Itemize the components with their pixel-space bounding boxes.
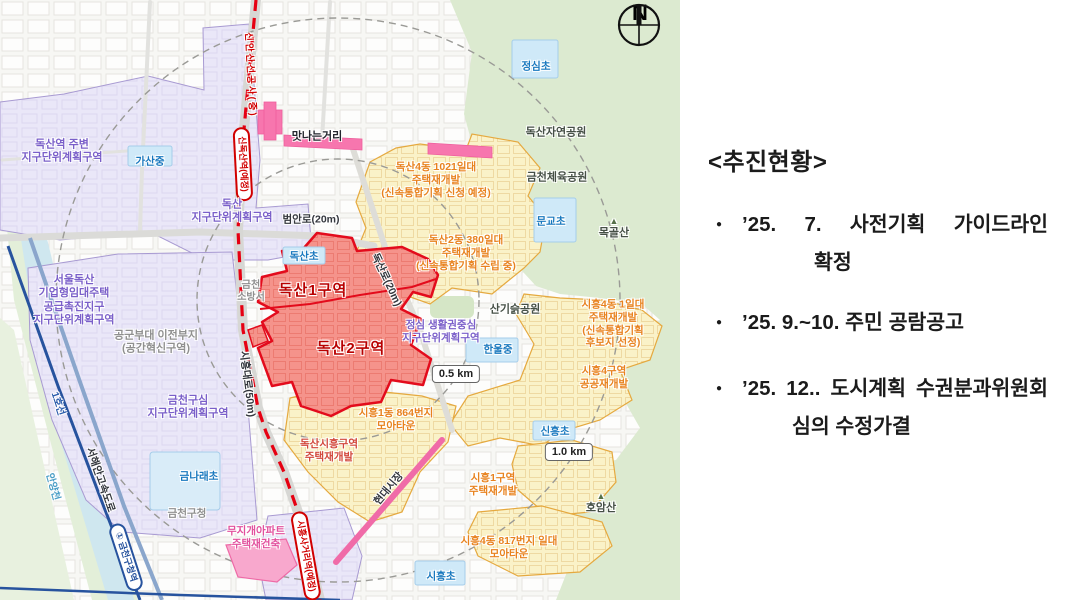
zone-label-jeongsim-udp: 정심 생활권중심 지구단위계획구역 [402,319,479,345]
place-label-hoam-mountain: ▲ 호암산 [586,492,616,514]
place-label-geumnarae-elementary: 금나래초 [180,471,219,484]
place-label-gasan-middle-school: 가산중 [136,156,165,169]
road-label-beoman-ro: 범안로(20m) [283,214,340,227]
zone-label-siheung1dong-864: 시흥1동 864번지 모아타운 [359,407,434,433]
place-label-mokgol-mountain: ▲ 목골산 [599,217,629,239]
status-item-1-line2: 확정 [814,250,1046,276]
compass-rose: N [616,2,664,24]
zone-label-doksan2: 독산2구역 [317,340,386,358]
zone-label-doksan-siheung: 독산시흥구역 주택재개발 [300,438,358,464]
place-label-geumcheon-sports-park: 금천체육공원 [527,171,588,184]
place-label-doksan-nature-park: 독산자연공원 [526,126,587,139]
place-label-jeongsim-elementary: 정심초 [522,61,551,74]
zone-label-doksan4dong: 독산4동 1021일대 주택재개발 (신속통합기획 신청 예정) [381,161,490,199]
zone-label-siheung4-guyeok: 시흥4구역 공공재개발 [580,365,628,391]
zone-label-doksan2dong: 독산2동 380일대 주택재개발 (신속통합기획 수립 중) [416,234,516,272]
place-label-sangi-park: 산기슭공원 [490,303,541,316]
place-label-geumcheon-fire-station: 금천 소방서 [237,280,265,304]
status-item-3-line2: 심의 수정가결 [792,414,1046,440]
status-item-2-line1: ’25. 9.~10. 주민 공람공고 [742,310,1046,336]
zone-label-siheung1-guyeok: 시흥1구역 주택재개발 [469,472,517,498]
scale-badge-10km: 1.0 km [545,443,593,461]
place-label-doksan-elementary: 독산초 [290,251,319,264]
zone-label-doksan-station-udp: 독산역 주변 지구단위계획구역 [22,139,103,166]
zone-label-doksan1: 독산1구역 [279,282,348,300]
place-label-siheung-elementary: 시흥초 [427,571,456,584]
place-label-geumcheon-office: 금천구청 [168,508,207,521]
zone-label-matna-street: 맛나는거리 [292,130,343,143]
compass-icon [616,2,662,48]
place-label-sinheung-elementary: 신흥초 [541,426,570,439]
scale-badge-05km: 0.5 km [432,365,480,383]
place-label-mungyo-elementary: 문교초 [537,216,566,229]
slide: 독산역 주변 지구단위계획구역 가산중 맛나는거리 신안산선공사(중) 신독산역… [0,0,1080,600]
zone-label-doksan-udp: 독산 지구단위계획구역 [192,199,273,226]
panel-heading: <추진현황> [708,142,827,177]
bullet-icon: ● [716,383,722,394]
zone-label-gonggun-site: 공군부대 이전부지 (공간혁신구역) [114,330,198,357]
zone-label-siheung4dong: 시흥4동 1일대 주택재개발 (신속통합기획 후보지 선정) [580,298,647,349]
zone-label-geumcheon-gusim-udp: 금천구심 지구단위계획구역 [148,395,229,422]
place-label-hanul-middle-school: 한울중 [484,344,513,357]
status-panel: <추진현황> ● ’25. 7. 사전기획 가이드라인 확정 ● ’25. 9.… [680,0,1080,600]
status-item-3-line1: ’25. 12.. 도시계획 수권분과위원회 [742,376,1048,402]
mountain-peak-icon: ▲ [599,217,629,227]
district-map: 독산역 주변 지구단위계획구역 가산중 맛나는거리 신안산선공사(중) 신독산역… [0,0,680,600]
zone-label-mujigae-apt: 무지개아파트 주택재건축 [227,525,285,551]
status-item-3: ● ’25. 12.. 도시계획 수권분과위원회 심의 수정가결 [716,376,1046,440]
bullet-icon: ● [716,317,722,328]
status-item-1: ● ’25. 7. 사전기획 가이드라인 확정 [716,212,1046,276]
zone-label-siheung4dong-817: 시흥4동 817번지 일대 모아타운 [461,535,558,561]
status-item-1-line1: ’25. 7. 사전기획 가이드라인 [742,212,1048,238]
mountain-peak-icon: ▲ [586,492,616,502]
bullet-icon: ● [716,219,722,230]
zone-label-seoul-doksan: 서울독산 기업형임대주택 공급촉진지구 지구단위계획구역 [34,274,115,328]
status-item-2: ● ’25. 9.~10. 주민 공람공고 [716,310,1046,336]
